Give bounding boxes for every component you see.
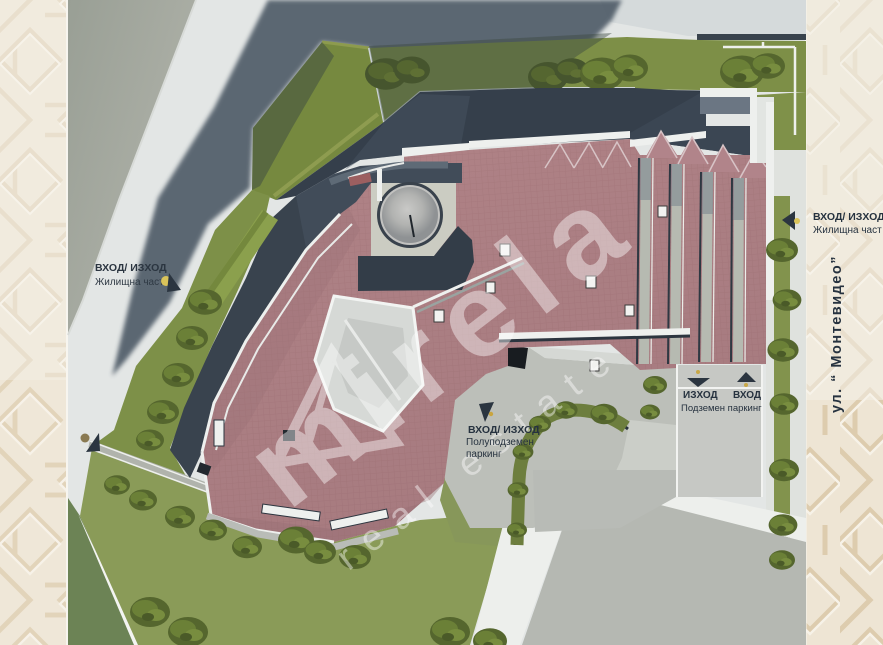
svg-text:паркинг: паркинг — [466, 449, 502, 460]
svg-text:Полуподземен: Полуподземен — [466, 437, 534, 448]
svg-text:ИЗХОД: ИЗХОД — [683, 390, 718, 401]
svg-text:ВХОД: ВХОД — [733, 390, 761, 401]
svg-text:Жилищна част: Жилищна част — [813, 225, 882, 236]
svg-text:ул. “ Монтевидео”: ул. “ Монтевидео” — [829, 255, 845, 413]
svg-text:ВХОД/ ИЗХОД: ВХОД/ ИЗХОД — [468, 424, 540, 436]
svg-text:Подземен паркинг: Подземен паркинг — [681, 403, 762, 414]
svg-text:ВХОД/ ИЗХОД: ВХОД/ ИЗХОД — [813, 211, 883, 223]
svg-text:Жилищна част: Жилищна част — [95, 277, 164, 288]
svg-text:ВХОД/ ИЗХОД: ВХОД/ ИЗХОД — [95, 262, 167, 274]
